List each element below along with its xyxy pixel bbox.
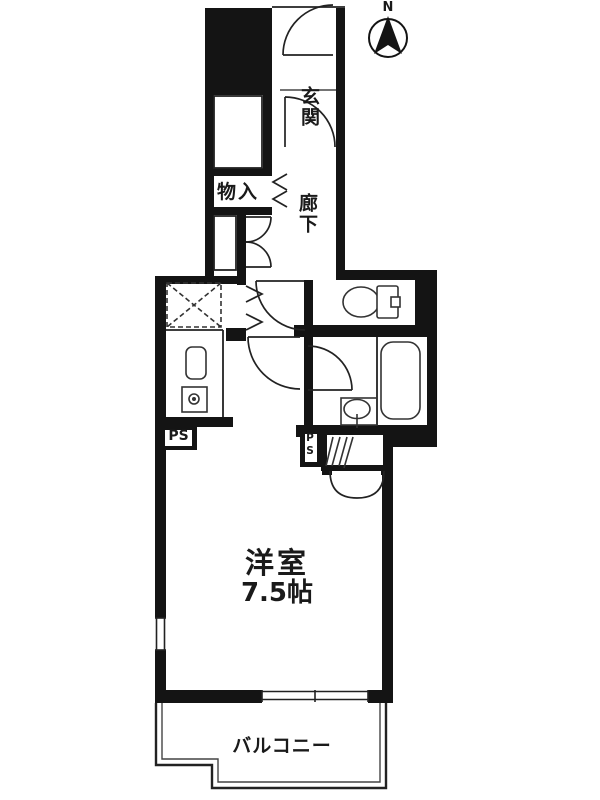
toilet xyxy=(343,286,400,318)
niche-space xyxy=(214,216,236,270)
stove xyxy=(182,387,207,412)
label-entrance: 玄関 xyxy=(296,86,323,128)
toilet-door xyxy=(256,281,305,330)
room-door xyxy=(248,337,300,389)
compass-icon xyxy=(369,16,407,57)
washer-bifold-door xyxy=(246,286,262,330)
bathtub xyxy=(381,342,420,419)
label-storage: 物入 xyxy=(211,177,265,204)
label-pipe-space-kitchen: PS xyxy=(163,428,194,444)
adjacent-space xyxy=(214,96,262,168)
shaft-solid-block xyxy=(205,8,272,95)
service-boxes xyxy=(160,425,389,471)
closet-doors xyxy=(330,471,384,498)
label-western-room-size: 7.5帖 xyxy=(202,572,352,609)
label-hallway: 廊下 xyxy=(294,193,321,235)
corridor-double-door xyxy=(246,217,271,267)
label-balcony: バルコニー xyxy=(207,731,357,758)
label-pipe-space-bath: PS xyxy=(304,432,316,458)
balcony-window xyxy=(262,690,368,703)
kitchen-sink xyxy=(186,347,206,379)
floorplan-page: N 玄関 物入 廊下 PS PS 洋室 7.5帖 バルコニー xyxy=(0,0,600,800)
storage-bifold-door xyxy=(273,174,287,207)
wash-basin xyxy=(341,398,377,428)
compass-north-label: N xyxy=(374,0,402,15)
washroom-door xyxy=(308,346,352,390)
entrance-door xyxy=(283,5,333,55)
washer-space xyxy=(167,283,221,327)
side-window xyxy=(155,618,166,650)
